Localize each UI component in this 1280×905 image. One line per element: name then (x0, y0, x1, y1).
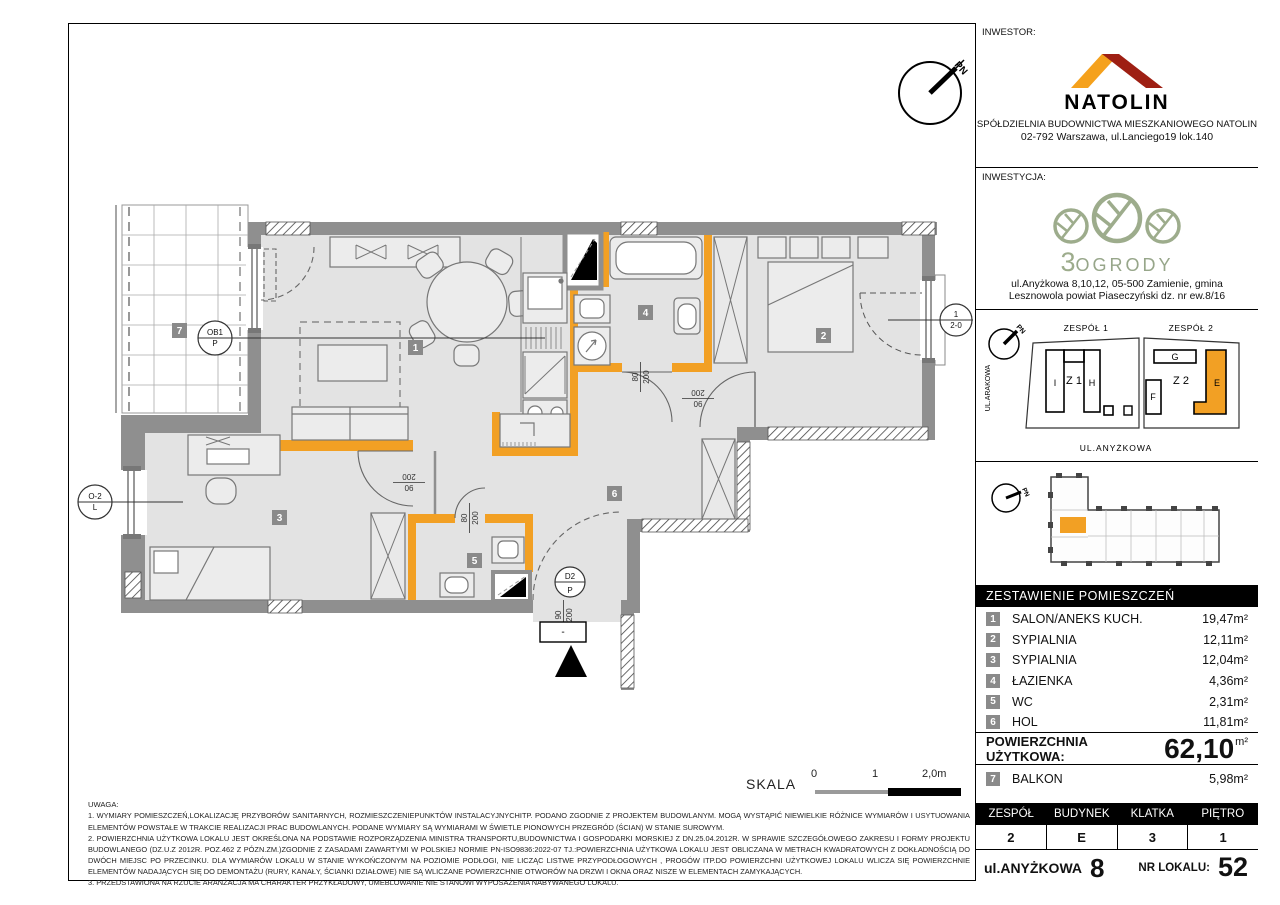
svg-text:2: 2 (821, 331, 827, 342)
building-z2-label: Z 2 (1173, 375, 1189, 387)
address-number: 8 (1090, 855, 1104, 881)
investor-label: INWESTOR: (982, 27, 1036, 38)
building-e-highlight (1194, 350, 1226, 414)
room-area: 2,31m² (1209, 695, 1248, 709)
ogrody-logo-icon (1042, 191, 1192, 247)
scale-tick-2: 2,0m (922, 768, 946, 780)
wardrobe-room2 (714, 237, 747, 363)
table-row: 3 SYPIALNIA 12,04m² (976, 650, 1258, 671)
room-area: 12,04m² (1202, 653, 1248, 667)
unit-value-pietro: 1 (1188, 825, 1258, 849)
chair-room3 (206, 478, 236, 504)
room-area: 19,47m² (1202, 612, 1248, 626)
floor-key-drawing: PN (976, 462, 1257, 583)
scale-tick-1: 1 (872, 768, 878, 780)
investor-line1: SPÓŁDZIELNIA BUDOWNICTWA MIESZKANIOWEGO … (977, 119, 1257, 130)
fridge (500, 414, 570, 447)
svg-text:5: 5 (472, 556, 478, 567)
floor-plan-sheet: PN (0, 0, 1280, 905)
svg-text:P: P (212, 339, 217, 348)
building-f-label: F (1150, 392, 1156, 402)
svg-text:80: 80 (631, 372, 640, 381)
room-name: HOL (1012, 715, 1038, 729)
svg-text:OB1: OB1 (207, 328, 224, 337)
table-row: 5 WC 2,31m² (976, 691, 1258, 712)
svg-text:P: P (567, 586, 572, 595)
unit-header-budynek: BUDYNEK (1047, 803, 1118, 825)
svg-text:L: L (93, 503, 98, 512)
note-2: 2. POWIERZCHNIA UŻYTKOWA LOKALU JEST OKR… (88, 833, 970, 877)
table-row: 4 ŁAZIENKA 4,36m² (976, 671, 1258, 692)
investment-label: INWESTYCJA: (982, 172, 1046, 183)
entry-symbols: - (540, 622, 587, 677)
unit-value-zespol: 2 (976, 825, 1047, 849)
lokal-label: NR LOKALU: (1138, 862, 1210, 874)
rooms-header-bar: ZESTAWIENIE POMIESZCZEŃ (976, 585, 1258, 607)
unit-value-budynek: E (1047, 825, 1118, 849)
floorkey-north-label: PN (1020, 487, 1030, 498)
bathtub (610, 237, 702, 279)
parcel-1 (1026, 338, 1139, 428)
zespol2-label: ZESPÓŁ 2 (1169, 323, 1214, 333)
investor-line2: 02-792 Warszawa, ul.Lanciego19 lok.140 (1021, 131, 1213, 143)
siteplan-compass-icon: PN (989, 324, 1026, 359)
room-area: 4,36m² (1209, 674, 1248, 688)
window-salon-balcony (246, 244, 263, 333)
title-block: INWESTOR: NATOLIN SPÓŁDZIELNIA BUDOWNICT… (975, 23, 1258, 881)
address-street: ul.ANYŻKOWA (984, 860, 1082, 876)
room-number-badge: 3 (986, 653, 1000, 667)
investment-name: OGRODY (1076, 255, 1174, 276)
north-compass-icon: PN (899, 60, 969, 124)
zespol1-label: ZESPÓŁ 1 (1064, 323, 1109, 333)
room-area: 11,81m² (1203, 715, 1248, 729)
note-1: 1. WYMIARY POMIESZCZEŃ,LOKALIZACJĘ PRZYB… (88, 810, 970, 832)
room-name: ŁAZIENKA (1012, 674, 1072, 688)
wc-sink (492, 537, 524, 563)
room-area: 12,11m² (1203, 633, 1248, 647)
floor-key-block: PN (976, 462, 1258, 585)
floorkey-compass-icon: PN (992, 484, 1030, 512)
investment-number: 3 (1060, 247, 1075, 278)
wardrobe-hol (702, 439, 735, 519)
unit-header-pietro: PIĘTRO (1188, 803, 1259, 825)
building-h-label: H (1089, 378, 1096, 388)
wc-toilet (440, 573, 474, 597)
investment-block: INWESTYCJA: 3 OGRODY ul.Anyżk (976, 168, 1258, 310)
siteplan-block: PN ZESPÓŁ 1 ZESPÓŁ 2 (976, 310, 1258, 462)
entry-threshold (533, 600, 621, 622)
room-number-badge: 1 (986, 612, 1000, 626)
rooms-header-label: ZESTAWIENIE POMIESZCZEŃ (976, 589, 1175, 603)
desk-room3 (188, 435, 280, 475)
table-row: 2 SYPIALNIA 12,11m² (976, 630, 1258, 651)
svg-text:200: 200 (402, 472, 416, 481)
svg-text:1: 1 (413, 343, 419, 354)
room-area: 5,98m² (1209, 772, 1248, 786)
table-row: 6 HOL 11,81m² (976, 712, 1258, 733)
scale-label: SKALA (746, 776, 796, 792)
window-room3 (119, 466, 147, 539)
room-name: SALON/ANEKS KUCH. (1012, 612, 1143, 626)
street-arakowa-label: UL.ARAKOWA (985, 364, 992, 411)
building-e-label: E (1214, 378, 1220, 388)
svg-text:3: 3 (277, 513, 283, 524)
unit-header-klatka: KLATKA (1117, 803, 1188, 825)
investment-line2: Lesznowola powiat Piaseczyński dz. nr ew… (1009, 291, 1225, 302)
building-g-label: G (1171, 352, 1178, 362)
bathroom-toilet (674, 298, 700, 334)
lokal-number: 52 (1218, 854, 1248, 881)
svg-text:90: 90 (404, 483, 413, 492)
address-block: ul.ANYŻKOWA 8 NR LOKALU: 52 (976, 850, 1258, 885)
svg-text:7: 7 (177, 326, 183, 337)
room-number-badge: 6 (986, 715, 1000, 729)
wardrobe-room3 (371, 513, 405, 599)
shaft-bathroom (565, 232, 601, 288)
floor-plan-drawing: PN (68, 25, 975, 805)
svg-text:200: 200 (565, 608, 574, 622)
bathroom-sink (574, 295, 610, 323)
investor-name: NATOLIN (1064, 91, 1169, 115)
natolin-logo-icon (1065, 47, 1169, 89)
svg-text:80: 80 (460, 513, 469, 522)
investor-block: INWESTOR: NATOLIN SPÓŁDZIELNIA BUDOWNICT… (976, 23, 1258, 168)
svg-text:4: 4 (643, 308, 649, 319)
room-number-badge: 4 (986, 674, 1000, 688)
investment-line1: ul.Anyżkowa 8,10,12, 05-500 Zamienie, gm… (1011, 279, 1223, 290)
sofa (292, 407, 408, 440)
svg-text:O-2: O-2 (88, 492, 102, 501)
building-i-label: I (1054, 378, 1057, 388)
notes: UWAGA: 1. WYMIARY POMIESZCZEŃ,LOKALIZACJ… (88, 799, 970, 888)
svg-text:2-0: 2-0 (950, 321, 962, 330)
room-number-badge: 2 (986, 633, 1000, 647)
note-3: 3. PRZEDSTAWIONA NA RZUCIE ARANŻACJA MA … (88, 877, 970, 888)
scale-bar (815, 788, 961, 795)
room-name: SYPIALNIA (1012, 633, 1077, 647)
marker-entry-door: D2P (555, 567, 585, 597)
bed-room3 (150, 547, 270, 600)
shaft-wc (493, 572, 530, 601)
svg-text:90: 90 (693, 399, 702, 408)
usable-area-label: POWIERZCHNIA UŻYTKOWA: (986, 734, 1164, 764)
street-anyzkowa-label: UL.ANYŻKOWA (1080, 443, 1153, 453)
washing-machine (574, 327, 610, 365)
room-name: WC (1012, 695, 1033, 709)
siteplan-drawing: PN ZESPÓŁ 1 ZESPÓŁ 2 (976, 310, 1257, 460)
svg-text:200: 200 (691, 388, 705, 397)
usable-area-block: POWIERZCHNIA UŻYTKOWA: 62,10 m² (976, 733, 1258, 765)
usable-area-unit: m² (1235, 733, 1248, 748)
unit-info-header: ZESPÓŁ BUDYNEK KLATKA PIĘTRO (976, 803, 1258, 825)
balcony-block: 7 BALKON 5,98m² (976, 765, 1258, 803)
room-number-badge: 7 (986, 772, 1000, 786)
balcony (116, 205, 248, 413)
svg-text:D2: D2 (565, 572, 576, 581)
usable-area-value: 62,10 (1164, 735, 1234, 763)
building-z1-label: Z 1 (1066, 375, 1082, 387)
entry-level-label: - (561, 627, 564, 638)
table-row: 1 SALON/ANEKS KUCH. 19,47m² (976, 609, 1258, 630)
room-name: BALKON (1012, 772, 1063, 786)
notes-title: UWAGA: (88, 799, 970, 810)
unit-header-zespol: ZESPÓŁ (976, 803, 1047, 825)
rooms-table: 1 SALON/ANEKS KUCH. 19,47m² 2 SYPIALNIA … (976, 607, 1258, 733)
room-name: SYPIALNIA (1012, 653, 1077, 667)
svg-text:200: 200 (471, 511, 480, 525)
unit-highlight (1060, 517, 1086, 533)
room-number-badge: 5 (986, 695, 1000, 709)
svg-text:90: 90 (554, 610, 563, 619)
unit-value-klatka: 3 (1118, 825, 1189, 849)
svg-text:1: 1 (954, 310, 959, 319)
unit-info-values: 2 E 3 1 (976, 825, 1258, 850)
svg-text:200: 200 (642, 370, 651, 384)
svg-text:6: 6 (612, 489, 618, 500)
entry-arrow-icon (555, 645, 587, 677)
scale-tick-0: 0 (811, 768, 817, 780)
